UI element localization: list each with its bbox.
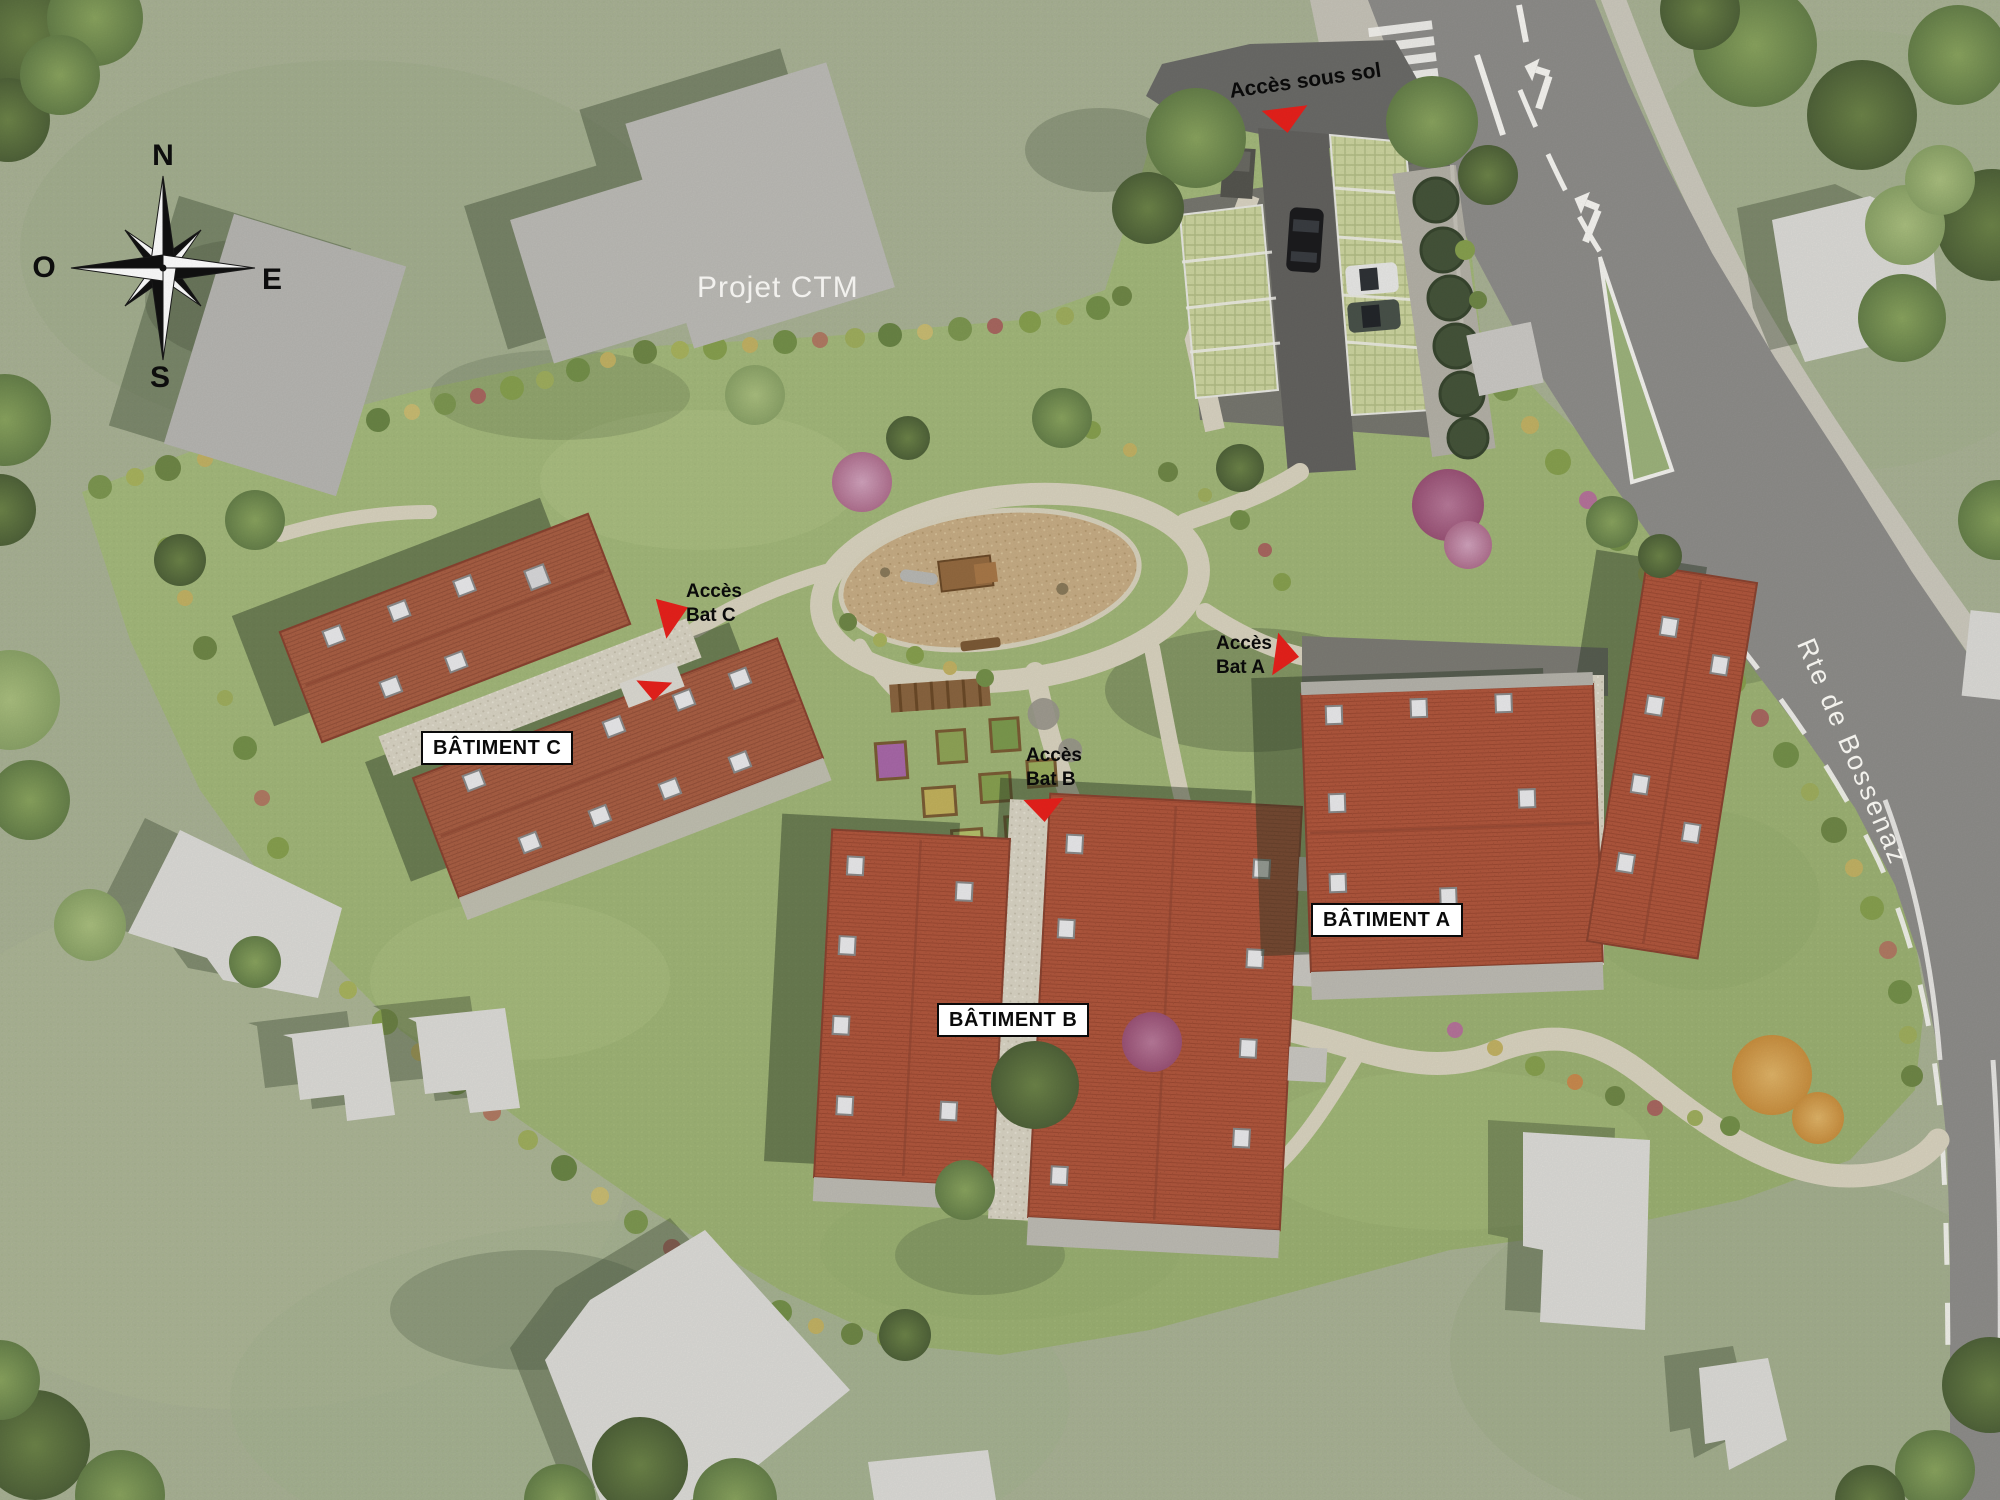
grain-overlay [0,0,2000,1500]
site-plan: N O E S Projet CTM Accès sous sol Accès … [0,0,2000,1500]
site-plan-rendering [0,0,2000,1500]
